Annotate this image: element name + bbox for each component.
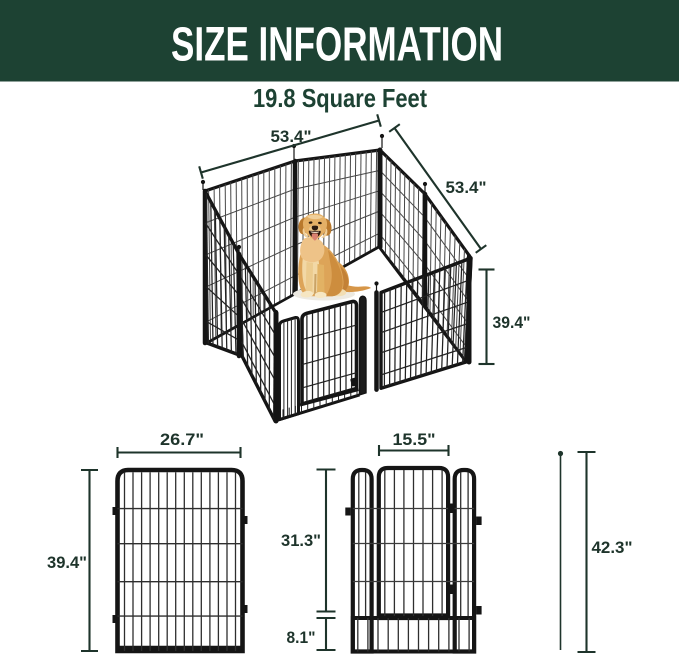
- svg-text:19.8 Square Feet: 19.8 Square Feet: [253, 83, 427, 113]
- svg-text:39.4": 39.4": [47, 553, 87, 572]
- svg-text:53.4": 53.4": [271, 127, 312, 146]
- svg-text:31.3": 31.3": [281, 531, 321, 550]
- svg-text:SIZE INFORMATION: SIZE INFORMATION: [171, 19, 503, 72]
- svg-text:53.4": 53.4": [446, 178, 487, 197]
- svg-text:26.7": 26.7": [160, 430, 204, 449]
- svg-text:15.5": 15.5": [393, 430, 436, 449]
- svg-text:8.1": 8.1": [287, 628, 316, 647]
- svg-text:39.4": 39.4": [493, 313, 531, 332]
- svg-text:42.3": 42.3": [592, 538, 633, 557]
